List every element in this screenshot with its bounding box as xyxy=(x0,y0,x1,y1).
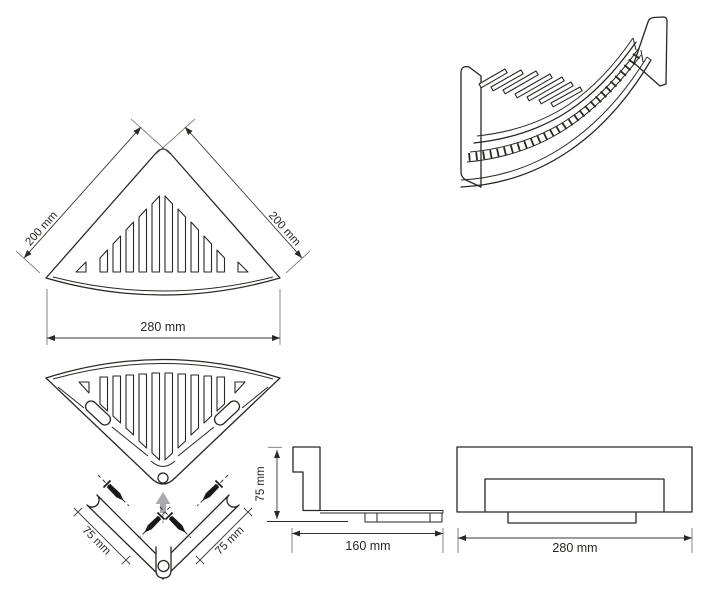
dim-280-front: 280 mm xyxy=(458,528,692,555)
slat xyxy=(178,209,186,272)
apron-bottom-inner-curve xyxy=(461,57,647,180)
corner-cutout-right xyxy=(235,382,245,393)
slat xyxy=(217,250,225,272)
dim-label-280-front: 280 mm xyxy=(552,541,597,555)
extension-line xyxy=(156,119,195,154)
corner-cutout-left xyxy=(79,382,89,393)
dim-label-280-overall: 280 mm xyxy=(140,320,185,334)
corner-bracket-view: 75 mm 75 mm xyxy=(74,471,252,579)
bottom-view xyxy=(46,360,280,485)
wall-bracket-profile xyxy=(293,447,320,511)
top-view: 200 mm 200 mm xyxy=(16,119,310,295)
top-view-front-band-line xyxy=(53,277,273,291)
front-view: 280 mm xyxy=(457,447,692,555)
rim-end-connector xyxy=(633,38,636,50)
mount-tab-left xyxy=(83,399,112,428)
extension-line xyxy=(16,251,40,273)
slat xyxy=(100,250,108,272)
slat xyxy=(191,222,199,272)
back-wall-left xyxy=(461,67,481,187)
dim-label-200-right: 200 mm xyxy=(266,210,303,249)
slat xyxy=(204,236,212,272)
dim-label-160: 160 mm xyxy=(345,539,390,553)
corner-cutout-right xyxy=(238,262,248,272)
dim-label-75-right: 75 mm xyxy=(213,524,246,557)
slat xyxy=(165,373,173,460)
dim-label-200-left: 200 mm xyxy=(23,210,60,249)
dim-280-overall: 280 mm xyxy=(47,289,280,345)
rib-band-lower-edge xyxy=(467,55,641,162)
vertex-hole xyxy=(158,473,168,483)
dim-label-75-left: 75 mm xyxy=(79,524,112,557)
dim-75-side: 75 mm xyxy=(255,447,282,519)
corner-basket-dimension-drawing: 200 mm 200 mm 280 mm xyxy=(0,0,720,599)
front-inner-panel xyxy=(485,479,664,512)
inner-wall-line xyxy=(58,387,84,408)
slat xyxy=(126,222,134,272)
dimension-line xyxy=(185,127,302,258)
technical-drawing-page: 200 mm 200 mm 280 mm xyxy=(0,0,720,599)
dimension-line xyxy=(24,127,141,258)
slat xyxy=(165,196,173,272)
dim-160-side: 160 mm xyxy=(292,528,443,553)
dim-label-75-side: 75 mm xyxy=(255,466,267,501)
slat xyxy=(178,374,186,448)
perspective-view xyxy=(461,17,667,187)
slat xyxy=(139,209,147,272)
top-view-outline xyxy=(46,149,280,295)
side-profile-view: 75 mm 160 mm xyxy=(255,447,443,553)
back-wall-right xyxy=(634,17,667,86)
vertex-inner-line xyxy=(151,461,175,467)
slat xyxy=(100,377,108,411)
top-view-slats xyxy=(100,196,225,272)
bottom-view-outline xyxy=(46,360,280,485)
slat xyxy=(152,196,160,272)
slat xyxy=(139,374,147,448)
slat xyxy=(113,376,121,423)
arrow-up-icon xyxy=(156,492,171,504)
slat xyxy=(152,373,160,460)
perspective-slats xyxy=(479,69,582,107)
slat xyxy=(113,236,121,272)
bracket-hole xyxy=(158,561,169,572)
front-bottom-tab xyxy=(508,512,636,523)
extension-line xyxy=(286,251,310,273)
slat xyxy=(126,375,134,435)
inner-wall-line xyxy=(242,387,268,408)
corner-cutout-left xyxy=(76,262,86,272)
slat xyxy=(217,377,225,411)
bottom-view-band-line xyxy=(53,364,273,380)
slat xyxy=(204,376,212,423)
extension-line xyxy=(131,119,170,154)
slat xyxy=(191,375,199,435)
screw-icon xyxy=(136,503,174,541)
